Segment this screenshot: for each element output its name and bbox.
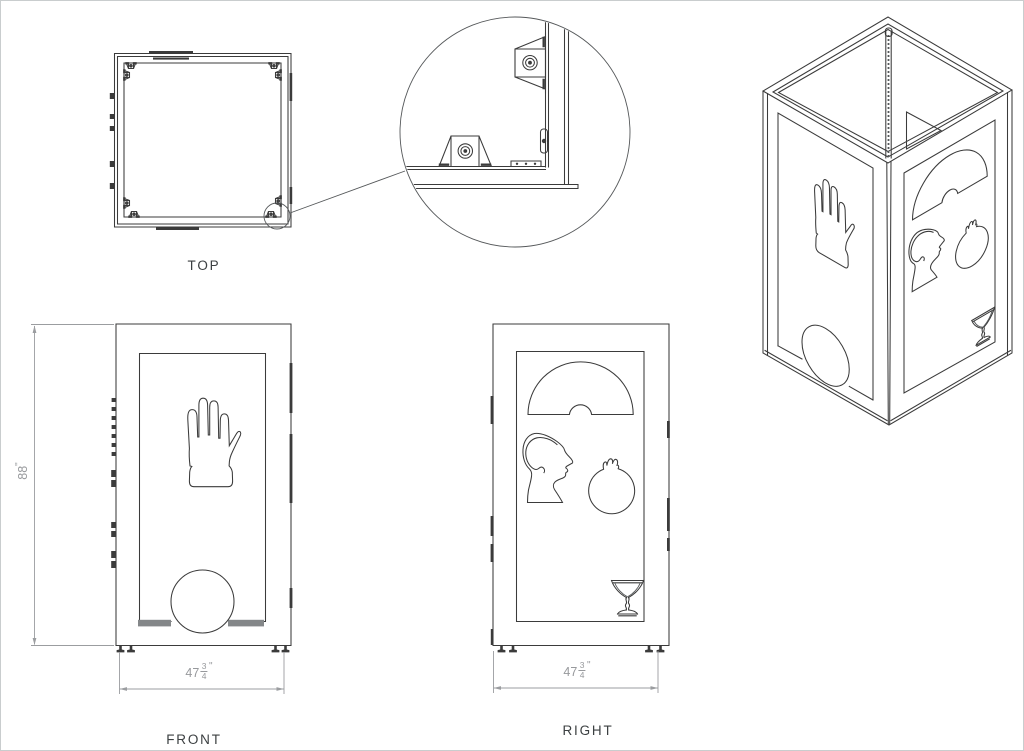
front-width-dimension: 47 3 4 " [185,663,212,683]
drawing-canvas: TOP FRONT RIGHT 88" 47 3 4 " 47 3 4 " [0,0,1024,751]
front-view [111,324,292,652]
front-view-label: FRONT [166,732,222,747]
right-view [491,324,670,652]
vent-slot [228,620,264,627]
top-view-label: TOP [188,258,221,273]
dimensions [31,325,658,695]
iso-right-cutouts [909,129,995,386]
front-height-dimension: 88" [16,462,30,479]
leveling-foot [282,646,290,653]
top-edge-bar [149,51,193,54]
detail-callout [290,9,630,247]
hinge-marks [111,398,116,568]
vent-slot [138,620,171,627]
leveling-foot [498,646,506,653]
leveling-foot [509,646,517,653]
leveling-foot [272,646,280,653]
fraction: 3 4 [579,661,586,681]
leveling-foot [645,646,653,653]
leveling-foot [117,646,125,653]
leveling-foot [127,646,135,653]
right-view-label: RIGHT [563,723,614,738]
right-width-dimension: 47 3 4 " [563,662,590,682]
isometric-view [763,17,1012,425]
detail-leader-line [290,171,405,213]
top-view [110,51,292,230]
cad-drawing [1,1,1024,751]
hinge-marks [110,93,114,189]
corner-post [885,28,892,158]
fraction: 3 4 [201,662,208,682]
bottom-edge-bar [156,227,199,230]
iso-front-cutouts [802,166,854,400]
